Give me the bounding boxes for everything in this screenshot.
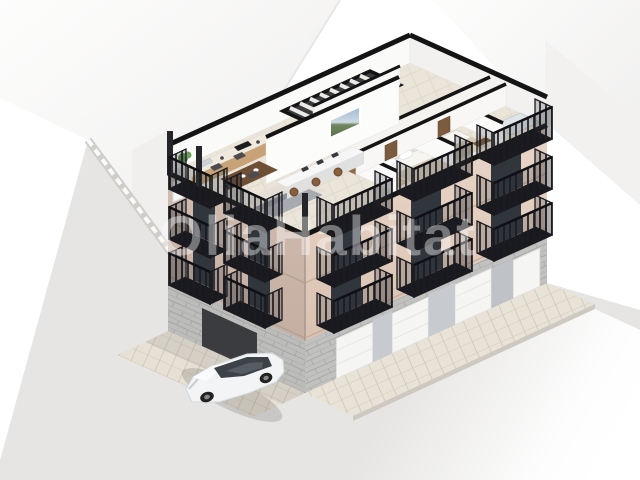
stool bbox=[312, 178, 320, 186]
stool bbox=[290, 188, 298, 196]
watermark: OliaHabitat bbox=[159, 204, 477, 267]
render-canvas: OliaHabitat bbox=[0, 0, 640, 480]
counter-item bbox=[220, 156, 224, 160]
building-render: OliaHabitat bbox=[0, 0, 640, 480]
garage-panel bbox=[373, 311, 392, 362]
stool bbox=[334, 168, 342, 176]
counter-item bbox=[256, 140, 260, 144]
